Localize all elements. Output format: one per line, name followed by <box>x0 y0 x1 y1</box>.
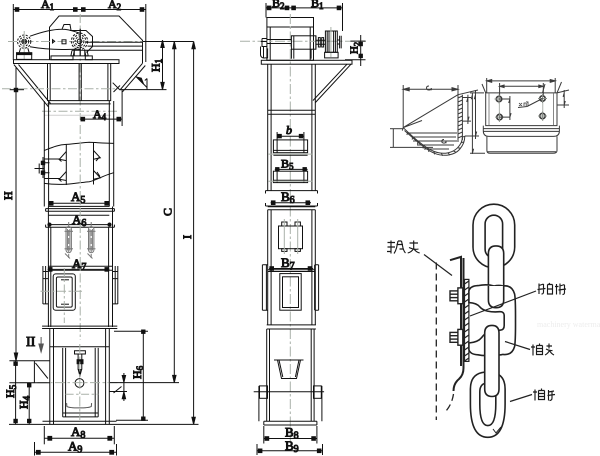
svg-text:A6: A6 <box>72 212 86 229</box>
svg-text:B6: B6 <box>281 189 295 206</box>
svg-text:C: C <box>161 208 175 216</box>
svg-text:H6: H6 <box>130 365 145 379</box>
svg-text:machinery watermark: machinery watermark <box>537 320 600 329</box>
svg-text:H5: H5 <box>3 384 18 398</box>
svg-text:H: H <box>1 191 15 200</box>
svg-text:H4: H4 <box>17 395 32 409</box>
svg-text:A1: A1 <box>41 0 54 12</box>
svg-text:H1: H1 <box>149 59 164 72</box>
svg-text:B2: B2 <box>272 0 285 11</box>
svg-text:H2: H2 <box>349 42 362 54</box>
svg-text:A4: A4 <box>93 107 107 122</box>
svg-text:B1: B1 <box>311 0 324 11</box>
svg-text:II: II <box>26 335 36 350</box>
svg-text:A2: A2 <box>108 0 121 12</box>
svg-text:I: I <box>180 235 194 239</box>
svg-text:A9: A9 <box>68 439 82 456</box>
svg-text:b: b <box>286 123 292 137</box>
